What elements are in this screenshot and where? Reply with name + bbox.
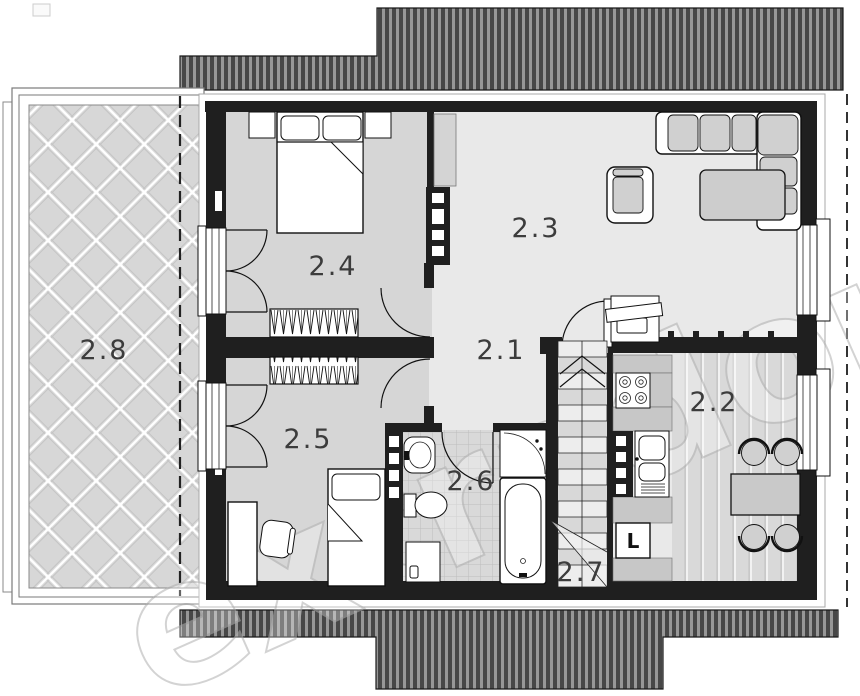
- wall-tick: [668, 331, 674, 337]
- fridge-label: L: [627, 529, 640, 553]
- window-dining: [797, 369, 830, 476]
- bathroom-sink: [404, 437, 435, 473]
- wall-exterior-top: [205, 101, 817, 112]
- dining-set: [731, 439, 802, 551]
- vent-shaft-living: [426, 187, 450, 265]
- wall-slot: [215, 191, 222, 211]
- dining-chair: [742, 441, 767, 466]
- single-bed: [328, 469, 385, 586]
- coffee-table: [700, 170, 785, 220]
- toilet: [404, 492, 447, 518]
- wall-tick: [768, 331, 774, 337]
- bathtub: [500, 478, 546, 584]
- shower: [500, 430, 546, 477]
- cabinet: [434, 114, 456, 186]
- dining-chair: [775, 441, 800, 466]
- room-label-2-3: 2.3: [512, 213, 561, 244]
- room-label-2-6: 2.6: [447, 466, 496, 497]
- room-label-2-4: 2.4: [309, 251, 358, 282]
- fridge: L: [616, 523, 650, 558]
- double-bed: [277, 112, 363, 233]
- wall-bath-top-left: [385, 423, 442, 432]
- room-label-2-1: 2.1: [477, 335, 526, 366]
- dining-table: [731, 474, 800, 515]
- stairs: [550, 341, 607, 587]
- wall-tick: [718, 331, 724, 337]
- washing-machine: [406, 542, 440, 582]
- dining-chair: [742, 525, 767, 550]
- wall-tick: [693, 331, 699, 337]
- desk-chair: [259, 519, 297, 559]
- room-label-2-2: 2.2: [690, 387, 739, 418]
- wall-24-25: [206, 337, 434, 358]
- tv-stand: [605, 296, 662, 342]
- kitchen-sink: [611, 431, 669, 497]
- wall-tick: [743, 331, 749, 337]
- corner-artifact: [33, 4, 50, 16]
- armchair: [607, 167, 653, 223]
- floor-plan-page: extradom: [0, 0, 860, 696]
- wardrobe-25: [270, 357, 358, 384]
- nightstand: [365, 112, 391, 138]
- dining-chair: [775, 525, 800, 550]
- window-living: [797, 219, 830, 321]
- room-label-2-8: 2.8: [80, 335, 129, 366]
- nightstand: [249, 112, 275, 138]
- stove: [616, 373, 650, 408]
- room-label-2-7: 2.7: [557, 557, 606, 588]
- room-label-2-5: 2.5: [284, 424, 333, 455]
- door-post-24: [424, 263, 434, 288]
- floor-plan-drawing: extradom: [0, 0, 860, 696]
- wardrobe-24: [270, 309, 358, 337]
- desk: [228, 502, 257, 586]
